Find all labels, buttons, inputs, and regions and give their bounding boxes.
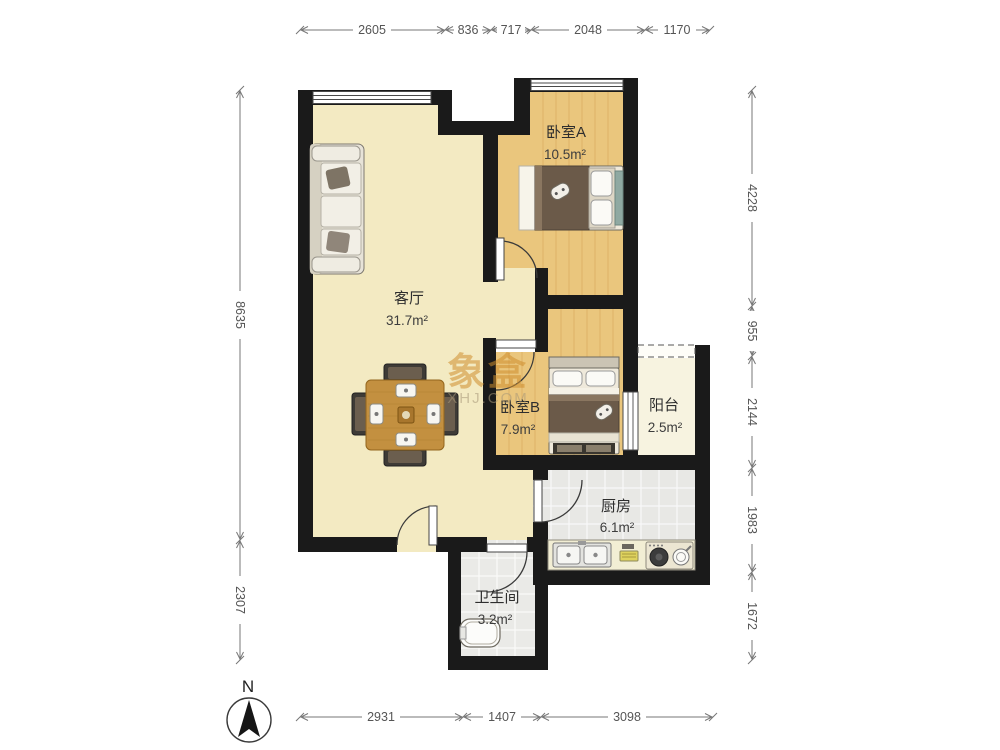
kitchen-counter [548, 540, 695, 570]
dim-top-0: 2605 [358, 23, 386, 37]
bedroom-a-window [531, 80, 623, 91]
sofa [310, 144, 364, 274]
balcony-open-edge [638, 345, 695, 357]
dim-top-1: 836 [458, 23, 479, 37]
balcony-door-window [623, 392, 638, 450]
floor-plan-image: 卧室A 10.5m² 客厅 31.7m² 卧室B 7.9m² 阳台 2.5m² … [0, 0, 1000, 750]
dim-bottom-0: 2931 [367, 710, 395, 724]
dim-left-0: 8635 [233, 301, 247, 329]
room-area-bedroom-b: 7.9m² [501, 422, 536, 437]
watermark-site: XHJ.COM [447, 390, 529, 407]
dim-right-3: 1983 [745, 506, 759, 534]
room-label-living: 客厅 [394, 290, 424, 307]
room-area-bathroom: 3.2m² [478, 612, 513, 627]
dimension-chain-right: 4228 955 2144 1983 1672 [744, 86, 760, 664]
stove [646, 542, 693, 569]
dim-top-3: 2048 [574, 23, 602, 37]
dimension-chain-top: 2605 836 717 2048 1170 [296, 22, 714, 38]
dim-right-0: 4228 [745, 184, 759, 212]
bed-double-b [549, 357, 619, 454]
room-area-living: 31.7m² [386, 313, 429, 328]
room-area-bedroom-a: 10.5m² [544, 147, 587, 162]
room-area-kitchen: 6.1m² [600, 520, 635, 535]
dim-top-4: 1170 [664, 23, 691, 37]
living-room-window [313, 92, 431, 104]
compass: N [227, 677, 271, 742]
kitchen-sink [553, 541, 611, 567]
dim-right-2: 2144 [745, 398, 759, 426]
dim-top-2: 717 [501, 23, 522, 37]
room-area-balcony: 2.5m² [648, 420, 683, 435]
dim-bottom-2: 3098 [613, 710, 641, 724]
room-label-bathroom: 卫生间 [474, 589, 519, 606]
compass-north-label: N [242, 677, 254, 696]
room-label-balcony: 阳台 [649, 397, 679, 414]
dim-right-1: 955 [745, 321, 759, 342]
bed-double-a [519, 166, 623, 230]
dim-bottom-1: 1407 [488, 710, 516, 724]
room-label-kitchen: 厨房 [601, 498, 631, 515]
watermark-brand: 象盒 [447, 352, 529, 394]
dim-right-4: 1672 [745, 602, 759, 630]
room-label-bedroom-a: 卧室A [546, 124, 586, 141]
dimension-chain-bottom: 2931 1407 3098 [296, 709, 717, 725]
dimension-chain-left: 8635 2307 [232, 86, 248, 664]
dim-left-1: 2307 [233, 586, 247, 614]
watermark: 象盒 XHJ.COM [447, 352, 529, 407]
